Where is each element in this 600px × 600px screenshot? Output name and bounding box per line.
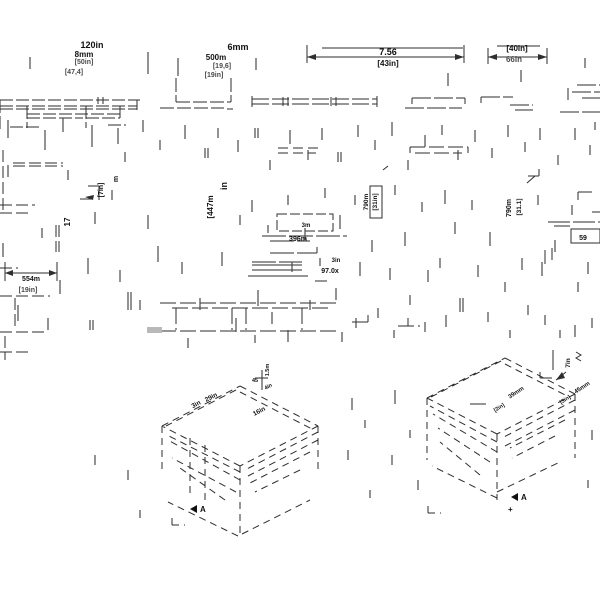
iso-left-label-4: 4in <box>264 382 274 391</box>
iso-right-label-4: [2in] <box>493 402 506 413</box>
dim-label-b0: 6mm <box>227 42 248 52</box>
section-marker-label-left: A <box>200 505 206 514</box>
dim-label-e0: 17 <box>63 217 72 226</box>
section-marker-label-right: A <box>521 493 527 502</box>
side-view-right-lines <box>545 192 600 264</box>
dim-label-e2: m <box>113 176 120 182</box>
noise-fragments <box>3 52 595 518</box>
dim-label-a0: 120in <box>80 40 103 50</box>
dim-label-b2: [19,6] <box>213 63 231 70</box>
slab-view-b <box>405 85 600 112</box>
dim-label-m0: 59 <box>579 235 587 242</box>
dim-label-i0: 3in <box>332 258 341 264</box>
dim-j-tick <box>383 166 388 170</box>
iso-right-label-0: 7in <box>565 358 572 367</box>
isometric-view-left <box>162 386 318 538</box>
section-marker-triangle-left <box>190 505 197 513</box>
iso-right-arrowhead <box>556 372 565 380</box>
dim-label-k0: 790m <box>506 199 513 217</box>
dim-label-h0: 3m <box>302 223 311 229</box>
dimension-labels: 120in 8mm [50in] [47,4] 6mm 500m [19,6] … <box>19 40 592 514</box>
mid-piece-center <box>278 148 320 153</box>
iso-left-label-5: 1.5m <box>265 364 271 377</box>
dim-label-a1: 8mm <box>75 50 94 59</box>
dim-label-h1: 396m <box>289 236 307 243</box>
noise-ticks <box>3 52 595 518</box>
front-view-bottom <box>160 303 420 331</box>
dim-label-c0: 7.56 <box>379 47 397 57</box>
section-marker-triangle-right <box>511 493 518 501</box>
iso-left-label-2: 16in <box>252 406 267 418</box>
isometric-view-right <box>427 358 575 513</box>
dim-label-c1: [43in] <box>377 59 399 68</box>
section-marker-plus: + <box>508 505 513 514</box>
iso-right-label-1: 39mm <box>508 386 526 400</box>
dim-label-a3: [47,4] <box>65 69 83 76</box>
dim-label-g0: [447m <box>206 195 215 218</box>
technical-drawing-screenshot: 120in 8mm [50in] [47,4] 6mm 500m [19,6] … <box>0 0 600 600</box>
isometric-views <box>162 350 581 538</box>
u-channel-view <box>160 78 233 109</box>
dim-label-j1: [31in] <box>372 193 379 210</box>
dim-label-i1: 97.0x <box>321 268 339 275</box>
iso-left-label-1: 29in <box>204 392 219 404</box>
cad-drawing-canvas: 120in 8mm [50in] [47,4] 6mm 500m [19,6] … <box>0 0 600 600</box>
panel-97-lines <box>248 265 327 281</box>
iso-right-label-2: 45mm <box>574 381 592 395</box>
dim-label-b1: 500m <box>206 53 226 62</box>
mid-piece-right <box>410 147 468 153</box>
iso-left-label-3: 45 <box>252 378 258 384</box>
plan-view-left <box>0 97 140 129</box>
front-view-bottom-gray-block <box>147 327 162 333</box>
dim-label-j0: 790m <box>363 193 370 210</box>
dim-label-d1: 66in <box>506 55 522 64</box>
dim-label-e1: [7in] <box>98 183 105 198</box>
dim-label-b3: [19in] <box>205 72 224 79</box>
dim-label-l1: [19in] <box>19 287 38 294</box>
front-view-left <box>0 150 63 360</box>
slab-view-a <box>252 96 377 107</box>
dim-label-l0: 554m <box>22 276 40 283</box>
dim-label-a2: [50in] <box>75 59 94 66</box>
dim-label-k1: [31.1] <box>516 199 523 216</box>
dim-label-g1: in <box>219 182 229 190</box>
dim-k-leader <box>527 169 539 183</box>
dim-label-d0: [40in] <box>506 44 528 53</box>
